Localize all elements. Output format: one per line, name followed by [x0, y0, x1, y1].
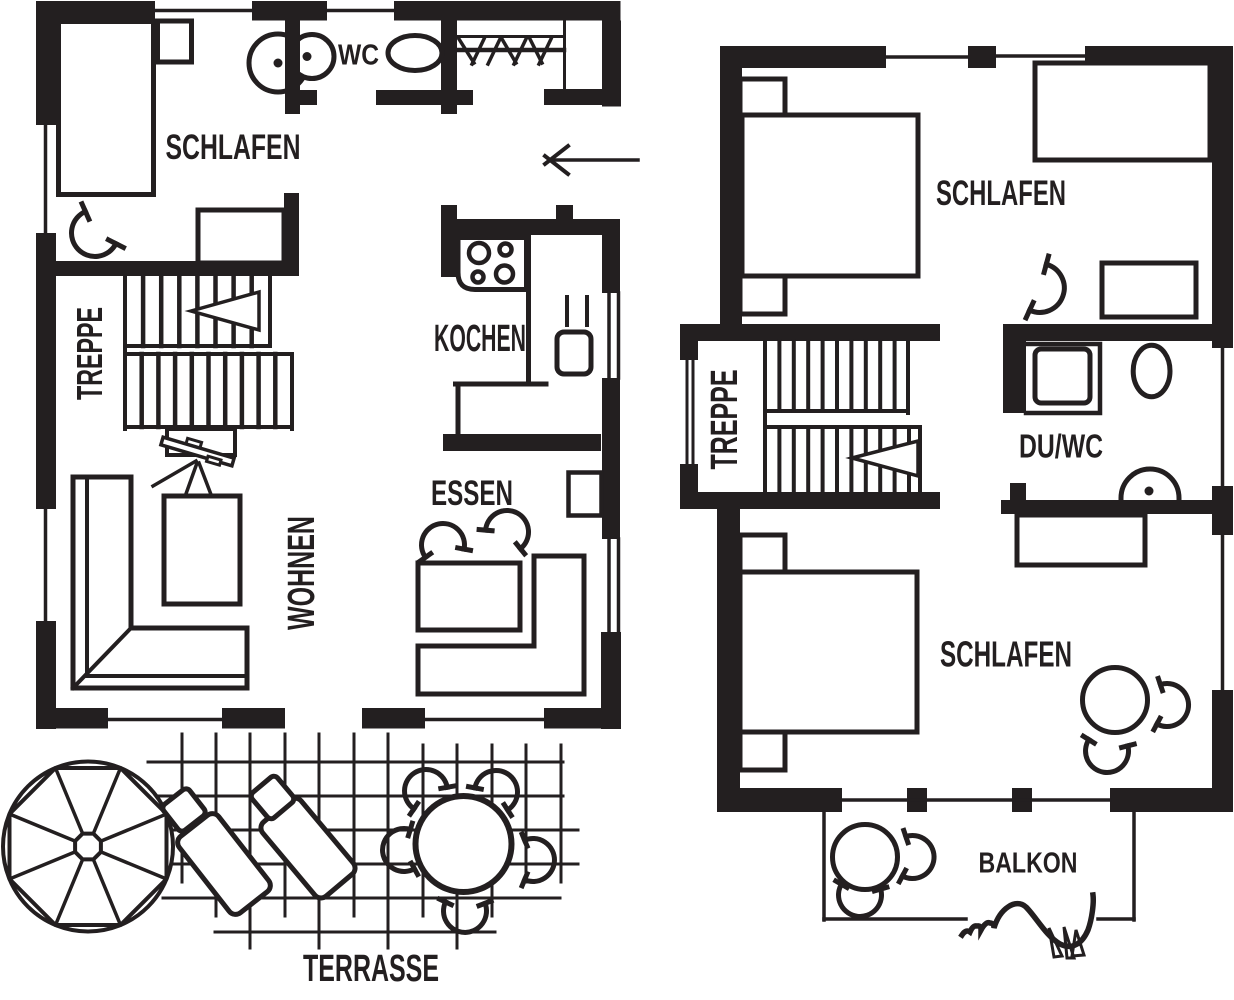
svg-text:ESSEN: ESSEN [431, 474, 513, 513]
svg-text:SCHLAFEN: SCHLAFEN [936, 174, 1066, 213]
svg-text:SCHLAFEN: SCHLAFEN [940, 634, 1072, 675]
svg-text:TREPPE: TREPPE [704, 370, 746, 470]
svg-text:WOHNEN: WOHNEN [281, 516, 323, 630]
svg-text:BALKON: BALKON [979, 848, 1078, 880]
svg-text:DU/WC: DU/WC [1019, 429, 1103, 466]
svg-text:TREPPE: TREPPE [69, 307, 110, 400]
svg-text:KOCHEN: KOCHEN [434, 318, 526, 360]
svg-text:SCHLAFEN: SCHLAFEN [166, 128, 301, 167]
svg-text:TERRASSE: TERRASSE [303, 948, 439, 990]
svg-text:WC: WC [338, 40, 379, 72]
